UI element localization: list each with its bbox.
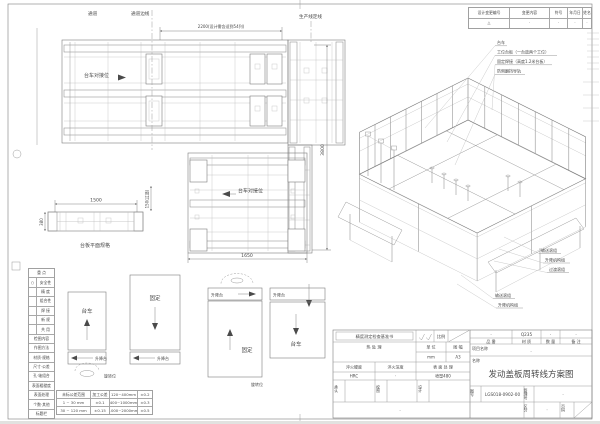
inspection-standard-title: 精度测定检查基准书 <box>356 333 394 340</box>
tolerance-cell: 未标公差范围 <box>57 391 90 398</box>
flow-pos2-label: 固定 <box>149 294 161 302</box>
registration-circle <box>13 150 21 158</box>
tolerance-cell: ±0.1 <box>90 399 109 406</box>
unit-value: mm <box>427 355 435 360</box>
check-mark <box>29 325 36 333</box>
remark-value: · <box>575 332 576 337</box>
check-item: 标题栏 <box>29 410 54 418</box>
drawing-no-value: LGS018-0902-00 <box>485 392 521 397</box>
plan-view-upper-bed: 台车对接位 <box>37 28 288 145</box>
check-items-table: 重 点 ○安全性 精 度 组合性 焊 接 新 规 共 用 检图内容 作图方法 材… <box>28 268 55 419</box>
qty-label: 数 量 <box>546 338 555 344</box>
check-item: 焊 接 <box>36 307 54 315</box>
quench-depth-value: · <box>395 374 396 379</box>
revision-cell: · <box>567 19 582 29</box>
tolerance-cell: ±0.2 <box>137 391 152 398</box>
flow-pos1-note: 旋转位 <box>104 373 116 379</box>
unit-label: 单 位 <box>426 343 435 349</box>
mgmt-no-label: 管理号 <box>523 388 529 401</box>
check-item: 表面粗糙度 <box>29 382 54 390</box>
feeder-bed-right <box>488 218 584 292</box>
check-item: 尺寸·公差 <box>29 363 54 371</box>
revision-cell: · <box>582 19 591 29</box>
designed-label: 设计 <box>417 384 423 393</box>
callout-lift-mechanism-1: 升降机构组 <box>545 257 565 263</box>
check-item: 精 度 <box>36 288 54 296</box>
tolerance-cell: 400~1000mm <box>109 399 137 406</box>
flow-pos3-sub: 升降台 <box>211 292 223 298</box>
dim-380: 380 <box>39 218 44 226</box>
quench-depth-label: 淬火深度 <box>388 364 404 370</box>
approved-label: 承认 <box>333 384 339 393</box>
sheet-size-label: 图 幅 <box>453 343 462 349</box>
drawing-no-label: 图号 <box>469 389 475 397</box>
tolerance-table: 未标公差范围 加工公差 120~400mm ±0.2 1 ~ 30 mm ±0.… <box>56 390 153 415</box>
check-mark: ○ <box>29 278 36 286</box>
locating-pins <box>430 167 522 201</box>
tolerance-cell: ±0.15 <box>90 407 109 414</box>
callout-transition-rollers: 过渡滚组 <box>549 266 565 272</box>
flow-pos4-label: 台车 <box>290 340 302 348</box>
check-section-header: 重 点 <box>29 269 54 277</box>
revision-col-header: 姓名 <box>582 8 591 18</box>
plan-dimensions: 通道 通道边线 生产线定线 2200(设计需含适到54列) 3800 1650 … <box>39 10 331 263</box>
check-item: 个数·其他 <box>29 400 54 408</box>
flow-pos1-label: 台车 <box>81 307 93 315</box>
dock-arrow-right-icon <box>118 75 126 81</box>
callout-anti-tip-rail: 防侧翻挡导轨 <box>497 68 521 74</box>
surface-treatment-value: 喷塑480 <box>435 373 451 379</box>
side-view-caption: 台板平面规格 <box>80 242 110 249</box>
deck <box>360 120 586 237</box>
check-item: 材质·规格 <box>29 353 54 361</box>
revision-cell: △ <box>469 19 509 29</box>
drawing-line-art: 台车对接位 <box>0 0 600 424</box>
revision-cell: · <box>549 19 567 29</box>
check-mark <box>29 307 36 315</box>
production-line-label: 生产线定线 <box>299 13 322 20</box>
quench-hardness-value: HRC <box>350 374 359 379</box>
check-item: 组合性 <box>36 297 54 305</box>
flow-pos3-label: 固定 <box>241 346 253 354</box>
revision-col-header: 变更内容 <box>509 8 549 18</box>
tolerance-cell: 1000~2000mm <box>109 407 137 414</box>
flow-diagram: 台车 升降台 旋转位 固定 升降台 升降台 固定 旋转位 升降台 <box>68 274 325 388</box>
class-label: 区分 <box>523 405 529 413</box>
plan-view-corner-section <box>288 40 345 253</box>
revision-cell: · <box>509 19 549 29</box>
revision-col-header: 设计变更编号 <box>469 8 509 18</box>
callout-roller-set-2: 输送滚组 <box>495 292 511 298</box>
flow-pos2-sub: 升降台 <box>157 355 169 361</box>
page-diagonal <box>574 402 592 418</box>
quench-hardness-label: 淬火硬度 <box>346 364 362 370</box>
revision-table: 设计变更编号 变更内容 符号 年月日 姓名 △ · · · · <box>468 7 592 29</box>
plan-view-pallet-side-view: 台板平面规格 <box>48 212 143 249</box>
dim-3800: 3800 <box>320 144 326 156</box>
check-item: 安全性 <box>36 278 54 286</box>
dock-arrow-left-icon <box>222 191 230 197</box>
check-mark <box>29 288 36 296</box>
surface-treatment-label: 表 面 处 理 <box>433 364 453 370</box>
fence-left <box>360 78 469 174</box>
callout-fixed-weld: 固定焊接（高度1.2米台板） <box>497 58 547 64</box>
revision-header-row: 设计变更编号 变更内容 符号 年月日 姓名 <box>469 8 591 18</box>
tolerance-cell: ±0.3 <box>137 399 152 406</box>
scale-label: 比例 <box>437 333 445 340</box>
cross-roller-bed <box>398 131 564 214</box>
check-item: 共 用 <box>36 325 54 333</box>
callout-work-pallet: 工位台板（一台放两个工位） <box>497 49 549 55</box>
dim-1500: 1500 <box>90 198 102 204</box>
revision-data-row: △ · · · · <box>469 18 591 29</box>
checked-label: 校图 <box>375 384 381 393</box>
part-no-value: · <box>490 332 491 337</box>
mgmt-no-value: · <box>562 392 563 397</box>
check-item: 新 规 <box>36 316 54 324</box>
flow-pos4-sub: 升降台 <box>273 292 285 298</box>
revision-col-header: 符号 <box>549 8 567 18</box>
fold-ticks <box>583 33 599 121</box>
material-label: 材 质 <box>522 338 531 344</box>
project-name-label: 项目名称 <box>472 345 488 351</box>
qty-value: · <box>550 332 551 337</box>
sheet-size-value: A3 <box>455 355 461 360</box>
callout-lift-mechanism-2: 升降机构组 <box>498 302 518 308</box>
title-block-note: · <box>399 408 400 413</box>
page-no-label: 页码 <box>560 404 566 413</box>
surface-finish-icon <box>419 334 432 340</box>
drawing-name-label: 名称 <box>472 357 480 363</box>
heat-treatment-label: 热 处 理 <box>366 344 382 351</box>
check-mark <box>29 297 36 305</box>
tolerance-cell: 加工公差 <box>90 391 109 398</box>
revision-col-header: 年月日 <box>567 8 582 18</box>
remark-label: 备 注 <box>571 338 580 344</box>
title-block: 精度测定检查基准书 比例 热 处 理 单 位 mm 图 幅 A3 淬火硬度 淬火… <box>333 330 592 418</box>
feeder-bed-left <box>338 202 402 262</box>
callouts-top: 台车 工位台板（一台放两个工位） 固定焊接（高度1.2米台板） 防侧翻挡导轨 <box>425 39 557 165</box>
check-item: 表面处理 <box>29 391 54 399</box>
aisle-edge-label: 通道边线 <box>131 10 150 17</box>
scale-diagonal <box>449 331 469 342</box>
callouts-lower: 输送滚组 升降机构组 <box>457 275 523 308</box>
aisle-label: 通道 <box>88 10 98 17</box>
tolerance-cell: 1 ~ 30 mm <box>57 399 90 406</box>
dock-position-label-upper: 台车对接位 <box>84 72 109 79</box>
dim-2200: 2200(设计需含适到54列) <box>198 23 245 29</box>
material-value: Q235 <box>521 332 533 337</box>
dim-150-aisle: 150(过道) <box>144 189 150 208</box>
drawing-name-value: 发动盖板周转线方案图 <box>488 369 573 380</box>
class-value: · <box>546 408 547 413</box>
tolerance-cell: ±0.5 <box>137 407 152 414</box>
registration-square <box>12 262 20 270</box>
check-mark <box>29 316 36 324</box>
flow-pos3-note: 旋转位 <box>251 381 263 387</box>
isometric-view: 台车 工位台板（一台放两个工位） 固定焊接（高度1.2米台板） 防侧翻挡导轨 输… <box>338 39 586 308</box>
part-no-label: 品 番 <box>486 338 495 344</box>
tolerance-cell: 120~400mm <box>109 391 137 398</box>
callout-trolley: 台车 <box>497 39 505 45</box>
check-item: 孔·轴组合 <box>29 372 54 380</box>
tolerance-cell: 30 ~ 120 mm <box>57 407 90 414</box>
underframe <box>360 174 586 281</box>
check-section-header: 检图内容 <box>29 335 54 343</box>
check-item: 作图方法 <box>29 344 54 352</box>
callout-roller-set-1: 输送滚组 <box>541 247 557 253</box>
drawing-sheet: 台车对接位 <box>0 0 600 424</box>
flow-pos1-sub: 升降台 <box>95 355 107 361</box>
dock-position-label-lower: 台车对接位 <box>238 188 263 195</box>
project-name-value: · <box>530 349 531 354</box>
fence-right <box>468 78 586 179</box>
dim-1650: 1650 <box>241 253 253 259</box>
